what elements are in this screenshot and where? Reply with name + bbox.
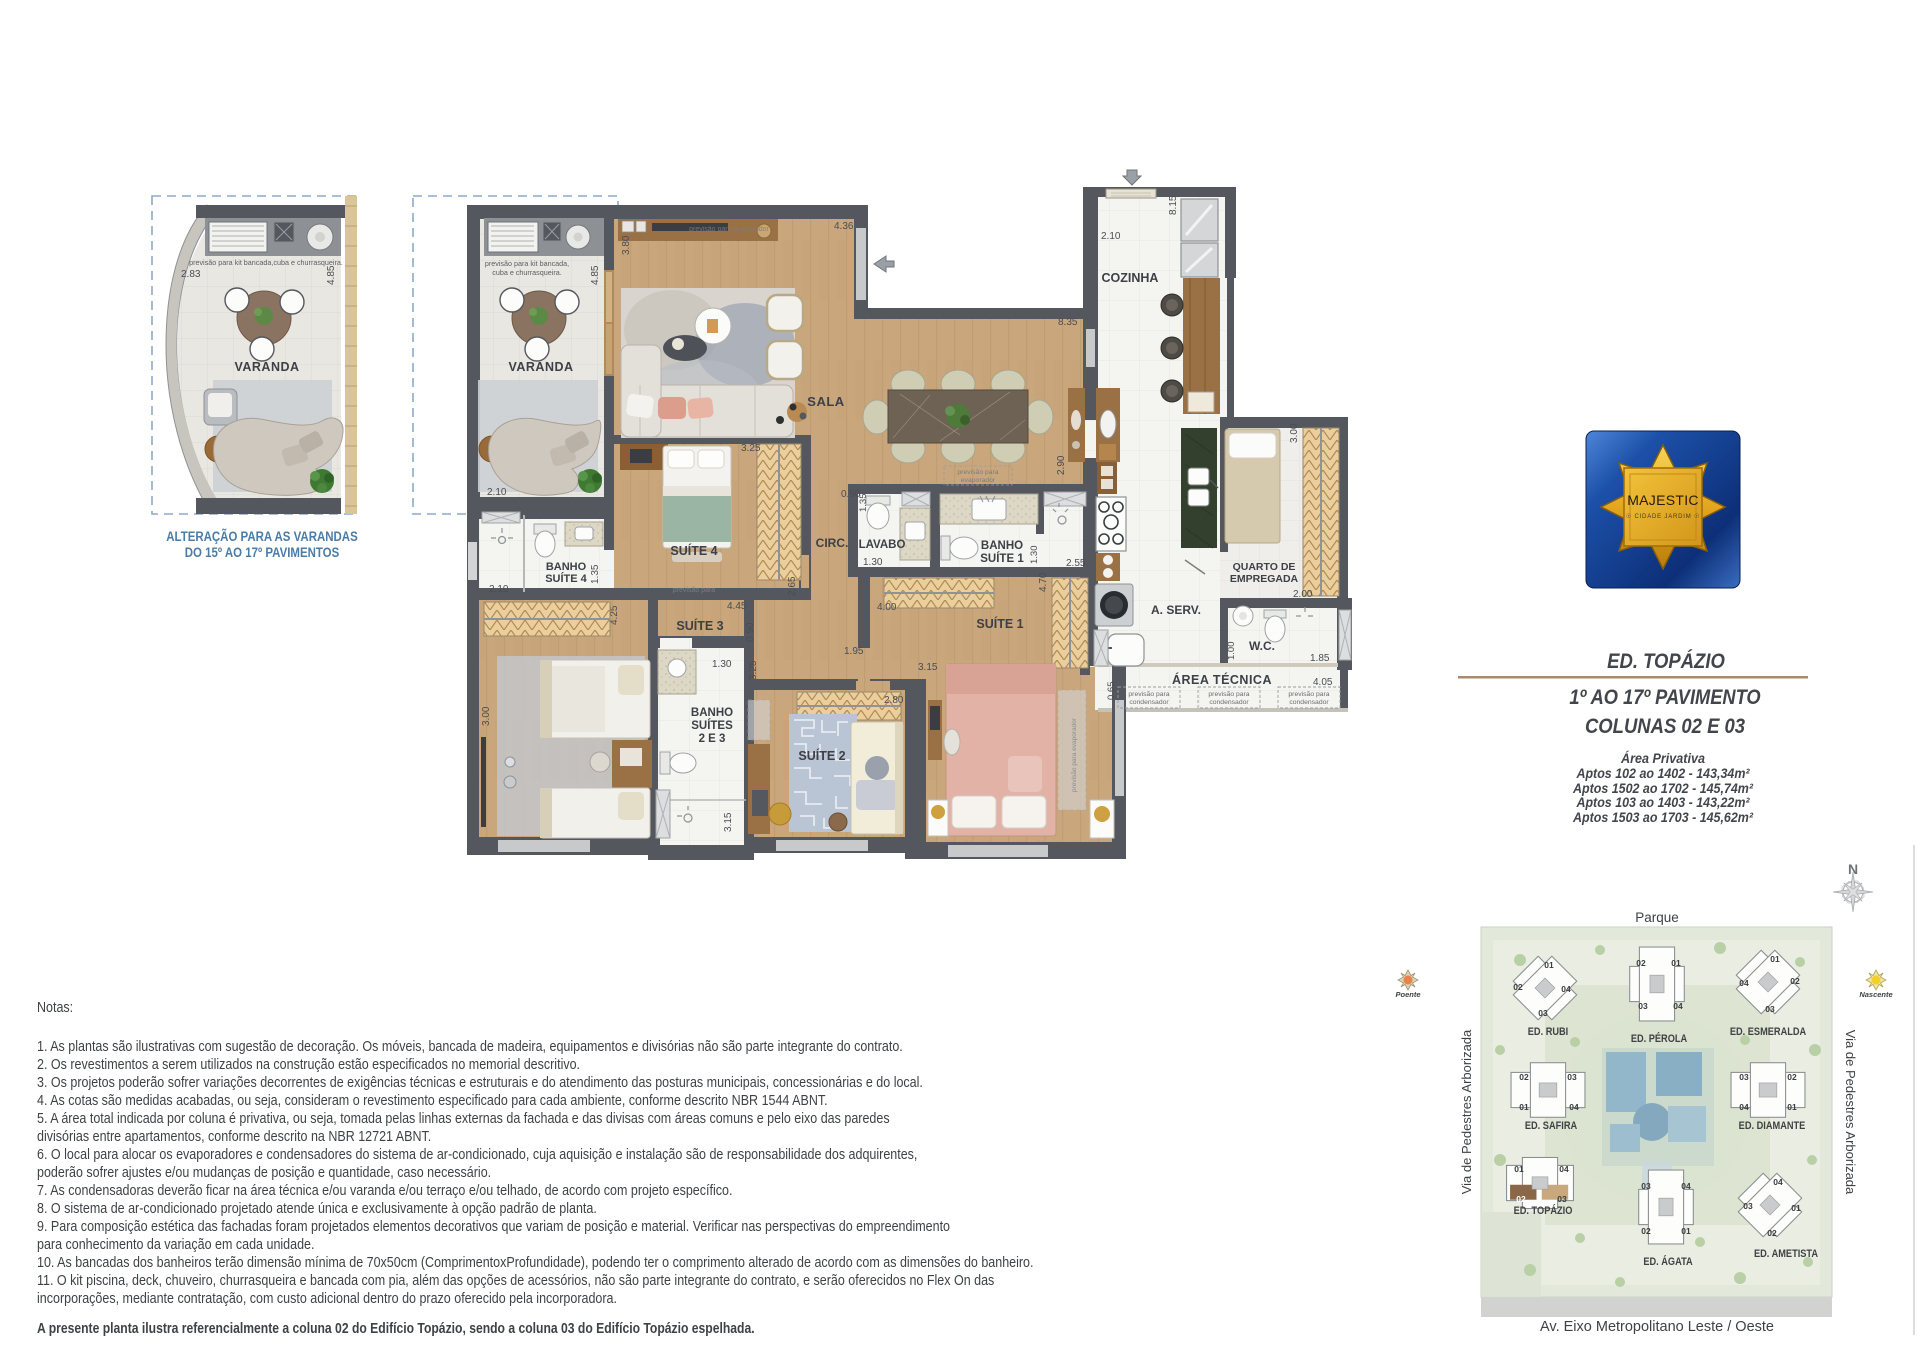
- svg-text:01: 01: [1519, 1102, 1529, 1112]
- svg-text:0.90: 0.90: [745, 622, 756, 642]
- svg-text:1º AO 17º PAVIMENTO: 1º AO 17º PAVIMENTO: [1569, 686, 1760, 709]
- svg-text:ED. SAFIRA: ED. SAFIRA: [1525, 1120, 1578, 1132]
- svg-text:ALTERAÇÃO PARA AS VARANDAS: ALTERAÇÃO PARA AS VARANDAS: [166, 528, 357, 544]
- svg-text:ED. PÉROLA: ED. PÉROLA: [1631, 1031, 1688, 1045]
- svg-text:03: 03: [1641, 1181, 1651, 1191]
- svg-text:04: 04: [1673, 1001, 1683, 1011]
- svg-text:Aptos 102 ao 1402 - 143,34m²: Aptos 102 ao 1402 - 143,34m²: [1576, 765, 1751, 781]
- svg-text:SUÍTE 4: SUÍTE 4: [670, 543, 717, 558]
- svg-text:04: 04: [1739, 1102, 1749, 1112]
- svg-text:QUARTO DE: QUARTO DE: [1233, 561, 1296, 573]
- svg-text:ED. TOPÁZIO: ED. TOPÁZIO: [1607, 649, 1725, 673]
- svg-text:condensador: condensador: [1289, 699, 1329, 706]
- svg-text:4.05: 4.05: [1313, 677, 1333, 688]
- svg-text:04: 04: [1561, 984, 1571, 994]
- svg-text:04: 04: [1681, 1181, 1691, 1191]
- svg-text:1.85: 1.85: [1310, 653, 1330, 664]
- svg-text:03: 03: [1765, 1004, 1775, 1014]
- svg-text:04: 04: [1739, 978, 1749, 988]
- svg-text:02: 02: [1767, 1228, 1777, 1238]
- svg-text:4.85: 4.85: [326, 265, 337, 285]
- svg-text:ED. TOPÁZIO: ED. TOPÁZIO: [1514, 1203, 1573, 1217]
- svg-text:evaporador: evaporador: [961, 477, 996, 484]
- svg-text:BANHO: BANHO: [691, 707, 733, 719]
- svg-text:03: 03: [1538, 1008, 1548, 1018]
- svg-text:02: 02: [1519, 1072, 1529, 1082]
- svg-text:01: 01: [1544, 960, 1554, 970]
- svg-text:01: 01: [1787, 1102, 1797, 1112]
- svg-text:3.80: 3.80: [621, 235, 632, 255]
- svg-text:02: 02: [1641, 1226, 1651, 1236]
- svg-text:1.30: 1.30: [863, 557, 883, 568]
- svg-text:condensador: condensador: [1209, 699, 1249, 706]
- svg-text:SUÍTE 4: SUÍTE 4: [545, 572, 587, 585]
- svg-text:03: 03: [1557, 1194, 1567, 1204]
- svg-text:02: 02: [1636, 958, 1646, 968]
- svg-text:A. SERV.: A. SERV.: [1151, 603, 1201, 617]
- svg-text:4.70: 4.70: [1038, 572, 1049, 592]
- svg-text:ÁREA TÉCNICA: ÁREA TÉCNICA: [1172, 672, 1272, 687]
- svg-text:previsão para: previsão para: [673, 587, 716, 594]
- svg-text:1.30: 1.30: [1029, 546, 1040, 565]
- svg-text:previsão para kit bancada,cuba: previsão para kit bancada,cuba e churras…: [189, 258, 343, 267]
- svg-text:Poente: Poente: [1395, 990, 1420, 999]
- svg-text:SALA: SALA: [807, 394, 845, 409]
- svg-text:4.36: 4.36: [834, 221, 854, 232]
- svg-text:previsão para: previsão para: [957, 469, 998, 476]
- svg-text:1.35: 1.35: [590, 564, 601, 584]
- svg-text:VARANDA: VARANDA: [234, 360, 299, 374]
- svg-text:1.00: 1.00: [1226, 642, 1237, 661]
- svg-text:SUÍTE 3: SUÍTE 3: [676, 618, 723, 633]
- svg-text:SUÍTES: SUÍTES: [691, 719, 733, 732]
- svg-text:Aptos 103 ao 1403 - 143,22m²: Aptos 103 ao 1403 - 143,22m²: [1576, 794, 1751, 810]
- svg-text:02: 02: [1516, 1194, 1526, 1204]
- svg-text:4.45: 4.45: [727, 601, 747, 612]
- svg-text:MAJESTIC: MAJESTIC: [1627, 492, 1699, 508]
- svg-text:2.55: 2.55: [1066, 558, 1086, 569]
- svg-text:SUÍTE 1: SUÍTE 1: [976, 616, 1023, 631]
- svg-text:Via de Pedestres Arborizada: Via de Pedestres Arborizada: [1459, 1029, 1474, 1194]
- svg-text:Aptos 1503 ao 1703 - 145,62m²: Aptos 1503 ao 1703 - 145,62m²: [1572, 809, 1754, 825]
- svg-text:4.85: 4.85: [590, 265, 601, 285]
- svg-text:04: 04: [1569, 1102, 1579, 1112]
- svg-text:Área Privativa: Área Privativa: [1620, 750, 1705, 766]
- svg-text:01: 01: [1681, 1226, 1691, 1236]
- svg-text:EMPREGADA: EMPREGADA: [1230, 573, 1299, 585]
- svg-text:ED. AMETISTA: ED. AMETISTA: [1754, 1248, 1819, 1260]
- svg-text:1.30: 1.30: [712, 659, 732, 670]
- svg-text:3.00: 3.00: [481, 706, 492, 726]
- svg-text:2.10: 2.10: [489, 584, 509, 595]
- svg-text:4.00: 4.00: [877, 602, 897, 613]
- svg-text:2.10: 2.10: [487, 487, 507, 498]
- svg-text:COZINHA: COZINHA: [1102, 271, 1159, 285]
- svg-text:previsão para: previsão para: [1208, 691, 1249, 698]
- svg-text:0.65: 0.65: [1106, 682, 1117, 701]
- svg-text:Nascente: Nascente: [1859, 990, 1892, 999]
- svg-text:04: 04: [1559, 1164, 1569, 1174]
- svg-text:03: 03: [1739, 1072, 1749, 1082]
- svg-text:Via de Pedestres Arborizada: Via de Pedestres Arborizada: [1843, 1030, 1858, 1195]
- svg-text:COLUNAS 02 E 03: COLUNAS 02 E 03: [1585, 715, 1745, 738]
- svg-text:condensador: condensador: [1129, 699, 1169, 706]
- svg-text:1.35: 1.35: [858, 494, 869, 513]
- svg-text:cuba e churrasqueira.: cuba e churrasqueira.: [492, 268, 562, 277]
- svg-text:previsão para kit bancada,: previsão para kit bancada,: [485, 259, 569, 268]
- svg-text:BANHO: BANHO: [546, 561, 587, 573]
- svg-text:2.80: 2.80: [884, 695, 904, 706]
- svg-text:DO 15º AO 17º PAVIMENTOS: DO 15º AO 17º PAVIMENTOS: [185, 545, 339, 560]
- svg-text:2.00: 2.00: [1293, 589, 1313, 600]
- svg-text:Parque: Parque: [1635, 910, 1679, 925]
- svg-text:01: 01: [1770, 954, 1780, 964]
- svg-text:SUÍTE 1: SUÍTE 1: [980, 552, 1024, 565]
- svg-text:ED. ESMERALDA: ED. ESMERALDA: [1730, 1026, 1807, 1038]
- svg-text:01: 01: [1791, 1203, 1801, 1213]
- svg-text:8.15: 8.15: [1168, 195, 1179, 215]
- svg-text:ED. RUBI: ED. RUBI: [1528, 1026, 1569, 1038]
- svg-text:3.15: 3.15: [918, 662, 938, 673]
- svg-text:previsão para evaporador: previsão para evaporador: [1071, 717, 1078, 792]
- svg-text:4.25: 4.25: [609, 605, 620, 625]
- svg-text:ED. ÁGATA: ED. ÁGATA: [1643, 1254, 1693, 1268]
- svg-text:LAVABO: LAVABO: [859, 539, 906, 551]
- svg-text:W.C.: W.C.: [1249, 639, 1275, 653]
- svg-text:03: 03: [1567, 1072, 1577, 1082]
- svg-text:02: 02: [1790, 976, 1800, 986]
- svg-text:3.15: 3.15: [723, 812, 734, 832]
- svg-text:1.95: 1.95: [844, 646, 864, 657]
- svg-text:03: 03: [1743, 1201, 1753, 1211]
- svg-text:2.90: 2.90: [1056, 455, 1067, 475]
- svg-text:01: 01: [1671, 958, 1681, 968]
- svg-text:CIRC.: CIRC.: [816, 536, 849, 550]
- svg-text:VARANDA: VARANDA: [508, 360, 573, 374]
- svg-text:8.35: 8.35: [1058, 317, 1078, 328]
- svg-text:02: 02: [1513, 982, 1523, 992]
- svg-text:3.25: 3.25: [748, 660, 759, 680]
- svg-text:2.65: 2.65: [787, 576, 798, 596]
- svg-text:previsão para evaporador: previsão para evaporador: [689, 226, 769, 233]
- svg-text:previsão para: previsão para: [1288, 691, 1329, 698]
- svg-text:2 E 3: 2 E 3: [699, 733, 726, 745]
- svg-text:01: 01: [1514, 1164, 1524, 1174]
- svg-text:BANHO: BANHO: [981, 540, 1023, 552]
- svg-text:Av. Eixo Metropolitano Leste /: Av. Eixo Metropolitano Leste / Oeste: [1540, 1319, 1774, 1335]
- svg-text:03: 03: [1638, 1001, 1648, 1011]
- svg-text:☉ CIDADE JARDIM ☉: ☉ CIDADE JARDIM ☉: [1626, 513, 1700, 520]
- svg-text:3.00: 3.00: [1289, 423, 1300, 443]
- svg-text:04: 04: [1773, 1177, 1783, 1187]
- svg-text:SUÍTE 2: SUÍTE 2: [798, 748, 845, 763]
- svg-text:2.83: 2.83: [181, 269, 201, 280]
- svg-text:ED. DIAMANTE: ED. DIAMANTE: [1739, 1120, 1806, 1132]
- svg-text:3.25: 3.25: [741, 443, 761, 454]
- svg-text:2.10: 2.10: [1101, 231, 1121, 242]
- svg-text:previsão para: previsão para: [1128, 691, 1169, 698]
- svg-text:02: 02: [1787, 1072, 1797, 1082]
